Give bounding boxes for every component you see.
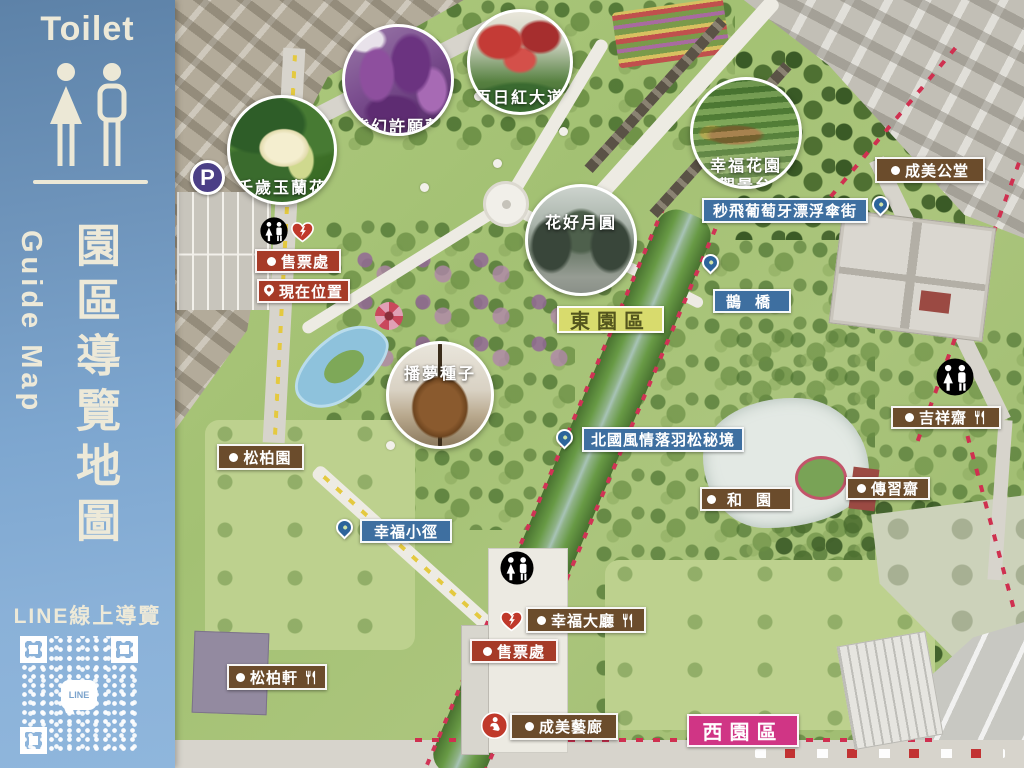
divider [33, 180, 148, 184]
poi-text: 鵲橋 [720, 291, 784, 312]
photo-circle-wisteria: 紫幻許願藤 [342, 24, 454, 136]
photo-circle-label: 播夢種子 [389, 360, 491, 384]
poi-text: 成美藝廊 [539, 716, 603, 737]
poi-text: 傳習齋 [871, 478, 919, 499]
poi-label: 西園區 [687, 714, 799, 747]
poi-label: 秒飛葡萄牙漂浮傘街 [702, 198, 868, 223]
photo-circle-crape: 百日紅大道 [467, 9, 573, 115]
path-node [559, 127, 568, 136]
bullet-dot-icon [267, 257, 276, 266]
poi-label: 東園區 [557, 306, 664, 333]
guide-map-chinese: 園區導覽地圖 [62, 222, 127, 552]
photo-circle-label: 花好月圓 [528, 209, 634, 233]
poi-label: 松柏軒 [227, 664, 327, 690]
path-node [420, 183, 429, 192]
poi-label: 成美藝廊 [510, 713, 618, 740]
aed-icon [499, 608, 524, 633]
poi-text: 東園區 [570, 305, 651, 334]
photo-circle-label: 百日紅大道 [470, 84, 570, 108]
bullet-dot-icon [483, 647, 492, 656]
aed-icon [290, 219, 315, 244]
poi-label: 北國風情落羽松秘境 [582, 427, 744, 452]
poi-text: 幸福小徑 [374, 521, 438, 542]
poi-label: 幸福大廳 [526, 607, 646, 633]
poi-text: 成美公堂 [905, 160, 969, 181]
photo-circle-garden: 幸福花園觀景台 [690, 77, 802, 189]
poi-label: 松柏園 [217, 444, 304, 470]
line-online-guide-label: LINE線上導覽 [0, 600, 175, 630]
bullet-dot-icon [857, 484, 866, 493]
poi-text: 西園區 [703, 716, 784, 745]
pond-island [318, 343, 369, 391]
path-node [386, 441, 395, 450]
restaurant-icon [303, 670, 318, 685]
location-pin-icon [262, 283, 276, 297]
parking-icon: P [190, 160, 225, 195]
nursing-icon [481, 712, 508, 739]
poi-text: 秒飛葡萄牙漂浮傘街 [713, 200, 857, 221]
poi-label: 售票處 [255, 249, 341, 273]
line-qr-code: LINE [20, 636, 138, 754]
restaurant-icon [972, 410, 987, 425]
poi-text: 北國風情落羽松秘境 [591, 429, 735, 450]
poi-label: 吉祥齋 [891, 406, 1001, 429]
poi-text: 吉祥齋 [919, 407, 967, 428]
poi-label: 成美公堂 [875, 157, 985, 183]
building-chengmei-hall [829, 209, 997, 342]
restaurant-icon [620, 613, 635, 628]
poi-label: 鵲橋 [713, 289, 791, 313]
path-node [493, 159, 502, 168]
bullet-dot-icon [891, 166, 900, 175]
photo-circle-label: 紫幻許願藤 [345, 113, 451, 136]
guide-map-sign: 千歲玉蘭花紫幻許願藤百日紅大道幸福花園觀景台花好月圓播夢種子售票處現在位置成美公… [0, 0, 1024, 768]
central-plaza-dot [502, 200, 511, 209]
poi-text: 和園 [721, 489, 785, 510]
bullet-dot-icon [905, 413, 914, 422]
poi-text: 售票處 [281, 251, 329, 272]
toilet-icon [260, 217, 288, 245]
photo-circle-label: 千歲玉蘭花 [230, 174, 334, 198]
photo-circle-seed: 播夢種子 [386, 341, 494, 449]
building-red-roof-small [919, 290, 951, 314]
poi-text: 松柏軒 [250, 667, 298, 688]
road-bottom-cars [755, 749, 1005, 758]
bullet-dot-icon [236, 673, 245, 682]
toilet-heading: Toilet [0, 10, 175, 49]
building-warehouse [837, 631, 944, 750]
photo-circle-magnolia: 千歲玉蘭花 [227, 95, 337, 205]
restroom-icon [36, 58, 140, 176]
sidebar: Toilet Guide Map 園區導覽地圖 LINE線上導覽 LINE [0, 0, 175, 768]
park-aerial-map: 千歲玉蘭花紫幻許願藤百日紅大道幸福花園觀景台花好月圓播夢種子售票處現在位置成美公… [175, 0, 1024, 768]
poi-label: 和園 [700, 487, 792, 511]
qr-finder-icon [20, 636, 47, 663]
poi-label: 傳習齋 [846, 477, 930, 500]
toilet-icon [500, 551, 534, 585]
guide-map-english: Guide Map [14, 230, 47, 414]
qr-finder-icon [20, 727, 47, 754]
poi-label: 幸福小徑 [360, 519, 452, 543]
lake-island [795, 456, 847, 500]
photo-circle-gazebo: 花好月圓 [525, 184, 637, 296]
flower-pinwheel [375, 302, 403, 330]
poi-text: 松柏園 [243, 447, 291, 468]
bullet-dot-icon [537, 616, 546, 625]
toilet-icon [936, 358, 974, 396]
bullet-dot-icon [229, 453, 238, 462]
poi-label: 現在位置 [257, 279, 350, 303]
line-logo-icon: LINE [61, 680, 97, 710]
poi-text: 售票處 [497, 641, 545, 662]
poi-text: 幸福大廳 [551, 610, 615, 631]
qr-finder-icon [111, 636, 138, 663]
poi-text: 現在位置 [279, 281, 343, 302]
poi-label: 售票處 [470, 639, 558, 663]
bullet-dot-icon [707, 495, 716, 504]
bullet-dot-icon [525, 722, 534, 731]
